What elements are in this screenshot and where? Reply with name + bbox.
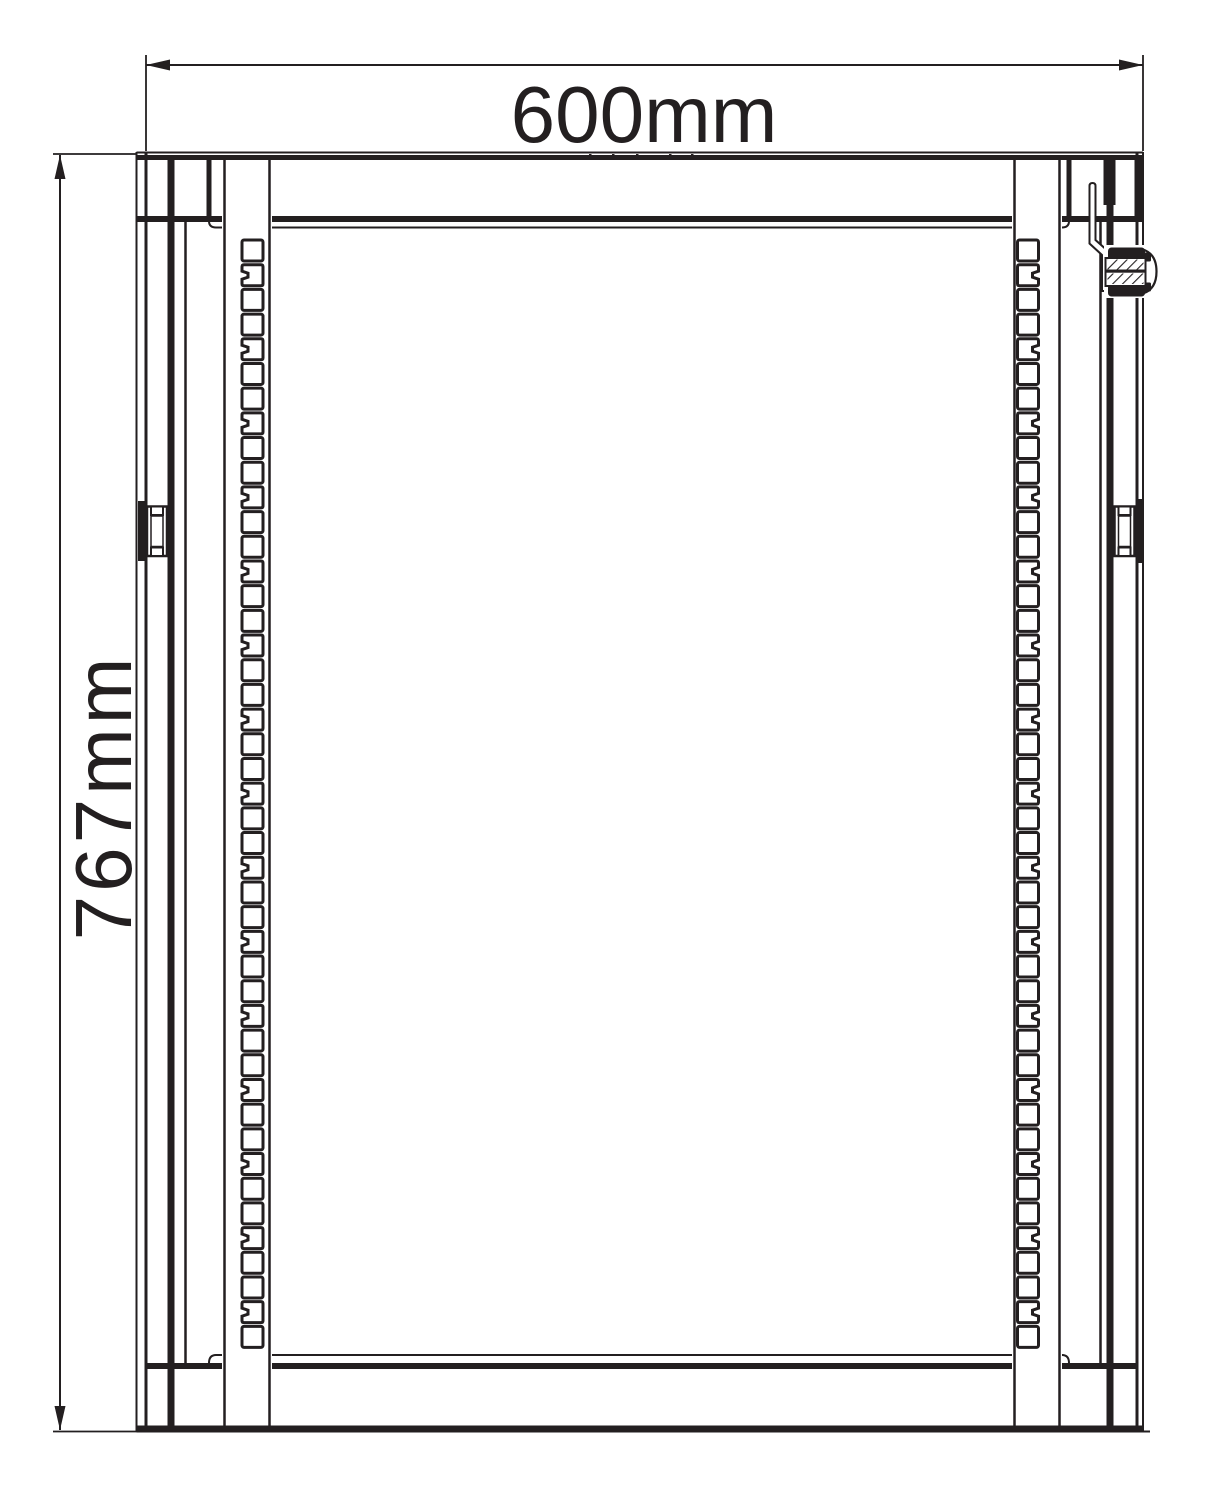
rail-hole-square: [1018, 438, 1039, 459]
rail-hole-square: [242, 388, 263, 409]
right-hinge: [1115, 499, 1144, 563]
rail-hole-square: [1018, 907, 1039, 928]
rail-hole-square: [242, 1104, 263, 1125]
rail-hole-square: [242, 610, 263, 631]
rail-hole-square: [1018, 1326, 1039, 1347]
rail-hole-square: [1018, 1129, 1039, 1150]
rail-hole-square: [242, 586, 263, 607]
rail-hole-square: [1018, 1030, 1039, 1051]
technical-drawing: 600mm 767mm: [0, 0, 1207, 1500]
rail-hole-square: [1018, 758, 1039, 779]
rail-hole-square: [242, 882, 263, 903]
rail-hole-square: [1018, 536, 1039, 557]
rail-hole-square: [242, 289, 263, 310]
rail-hole-square: [1018, 833, 1039, 854]
rail-hole-square: [242, 1326, 263, 1347]
rail-hole-square: [1018, 586, 1039, 607]
rail-hole-square: [242, 363, 263, 384]
rail-hole-square: [242, 833, 263, 854]
rail-hole-square: [1018, 808, 1039, 829]
rail-hole-square: [1018, 610, 1039, 631]
left-hinge: [138, 501, 167, 561]
rail-hole-square: [242, 1129, 263, 1150]
rail-hole-square: [1018, 462, 1039, 483]
rail-hole-square: [1018, 314, 1039, 335]
rail-hole-square: [242, 956, 263, 977]
rail-hole-square: [242, 734, 263, 755]
rail-hole-square: [242, 1252, 263, 1273]
rail-hole-square: [1018, 1277, 1039, 1298]
rail-hole-square: [1018, 1178, 1039, 1199]
rail-hole-square: [242, 1277, 263, 1298]
rail-hole-square: [242, 1055, 263, 1076]
rail-hole-square: [1018, 1252, 1039, 1273]
rail-hole-square: [1018, 981, 1039, 1002]
rail-hole-square: [1018, 363, 1039, 384]
rail-hole-square: [1018, 684, 1039, 705]
rail-hole-square: [242, 981, 263, 1002]
rail-hole-square: [242, 438, 263, 459]
rail-hole-square: [242, 314, 263, 335]
rail-hole-square: [1018, 240, 1039, 261]
width-dimension-label: 600mm: [511, 70, 778, 159]
door-lock: [1104, 245, 1157, 298]
rail-hole-square: [242, 808, 263, 829]
rail-hole-square: [1018, 1055, 1039, 1076]
rail-hole-square: [242, 462, 263, 483]
rail-hole-square: [242, 758, 263, 779]
rail-hole-square: [242, 907, 263, 928]
rail-hole-square: [1018, 882, 1039, 903]
rack-cabinet-front-view: 600mm 767mm: [0, 0, 1207, 1500]
rail-hole-square: [1018, 1203, 1039, 1224]
rail-hole-square: [242, 684, 263, 705]
rail-hole-square: [1018, 388, 1039, 409]
height-dimension-label: 767mm: [59, 654, 148, 941]
rail-hole-square: [242, 1030, 263, 1051]
rail-hole-square: [242, 536, 263, 557]
rail-hole-square: [1018, 289, 1039, 310]
rail-hole-square: [242, 1178, 263, 1199]
rail-hole-square: [1018, 512, 1039, 533]
rail-hole-square: [1018, 734, 1039, 755]
rail-hole-square: [1018, 956, 1039, 977]
rail-hole-square: [1018, 1104, 1039, 1125]
rail-hole-square: [1018, 660, 1039, 681]
rail-hole-square: [242, 512, 263, 533]
rail-hole-square: [242, 1203, 263, 1224]
rail-hole-square: [242, 660, 263, 681]
rail-hole-square: [242, 240, 263, 261]
